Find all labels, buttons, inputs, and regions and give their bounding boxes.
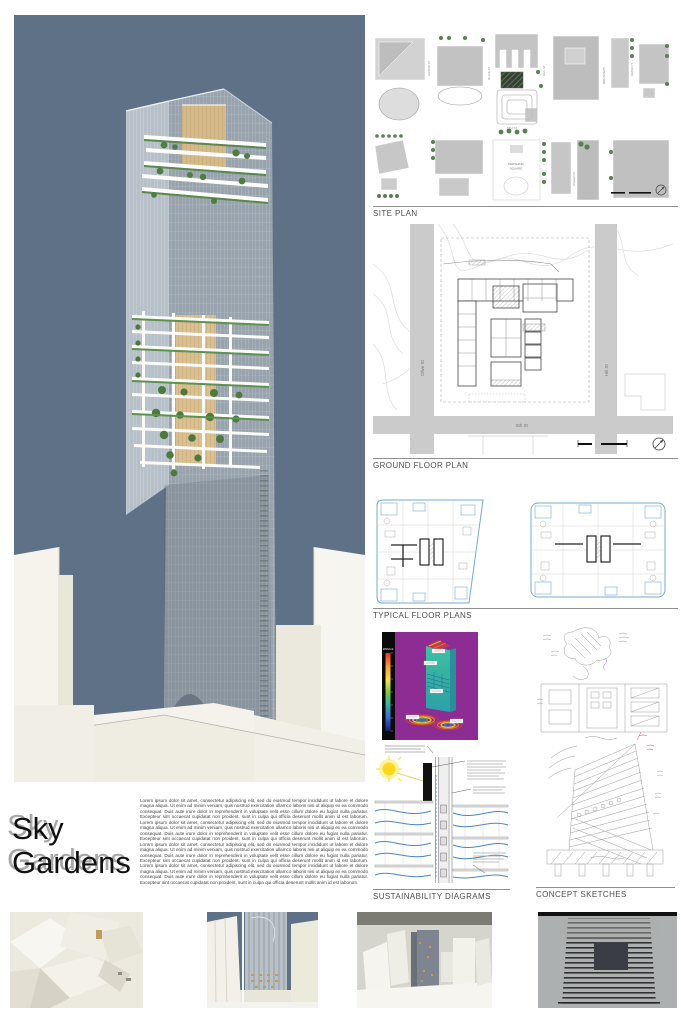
typical-plan-right <box>527 500 669 600</box>
concept-sketches-label: CONCEPT SKETCHES <box>536 888 627 899</box>
ground-floor-label: GROUND FLOOR PLAN <box>373 459 468 470</box>
color-scale-bar <box>386 653 391 731</box>
thumbnail-street-view <box>207 912 318 1008</box>
pershing-square: PERSHING SQUARE <box>493 140 540 200</box>
solar-chimney <box>423 763 432 801</box>
sustainability-label: SUSTAINABILITY DIAGRAMS <box>373 890 491 901</box>
site-plan-image: PERSHING SQUARE GRAND ST OLIVE ST HILL S… <box>373 28 673 203</box>
site-plan-rule <box>373 206 678 207</box>
project-site <box>501 72 523 88</box>
thumbnail-aerial-massing <box>10 912 143 1008</box>
thumbnail-structure-wireframe <box>538 912 677 1008</box>
ground-floor-plan-image: Olive St Hill St 5th St <box>373 224 673 454</box>
typical-plans-label: TYPICAL FLOOR PLANS <box>373 609 472 620</box>
street-label-frank: FRANK CT <box>630 63 634 76</box>
thumbnail-context-massing <box>357 912 492 1008</box>
gf-street-right: Hill St <box>604 363 609 376</box>
street-label-broadway: BROADWAY <box>602 67 606 84</box>
solar-radiation-diagram: kWh/m2 <box>382 632 478 740</box>
sketch-plan <box>537 684 667 740</box>
ventilation-section-diagram <box>373 753 510 885</box>
concept-sketches-image <box>535 622 675 884</box>
street-label-5th: 5TH ST <box>507 126 518 130</box>
sketch-massing <box>543 628 629 680</box>
square-label-2: SQUARE <box>510 167 523 171</box>
site-plan-label: SITE PLAN <box>373 207 418 218</box>
typical-plan-left <box>373 497 498 607</box>
square-label-1: PERSHING <box>508 162 524 166</box>
street-label-grand: GRAND ST <box>427 60 431 76</box>
main-render-image <box>14 15 365 782</box>
gf-street-left: Olive St <box>420 359 425 376</box>
gf-street-bottom: 5th St <box>516 423 529 428</box>
street-label-lindley: LINDLEY PL <box>572 171 576 186</box>
street-label-hill: HILL ST <box>542 65 546 76</box>
presentation-board: PERSHING SQUARE GRAND ST OLIVE ST HILL S… <box>0 0 681 1024</box>
scale-unit-label: kWh/m2 <box>383 647 394 651</box>
project-description: Lorem ipsum dolor sit amet, consectetur … <box>140 798 368 890</box>
sketch-section <box>547 732 663 876</box>
street-label-olive: OLIVE ST <box>487 66 491 80</box>
